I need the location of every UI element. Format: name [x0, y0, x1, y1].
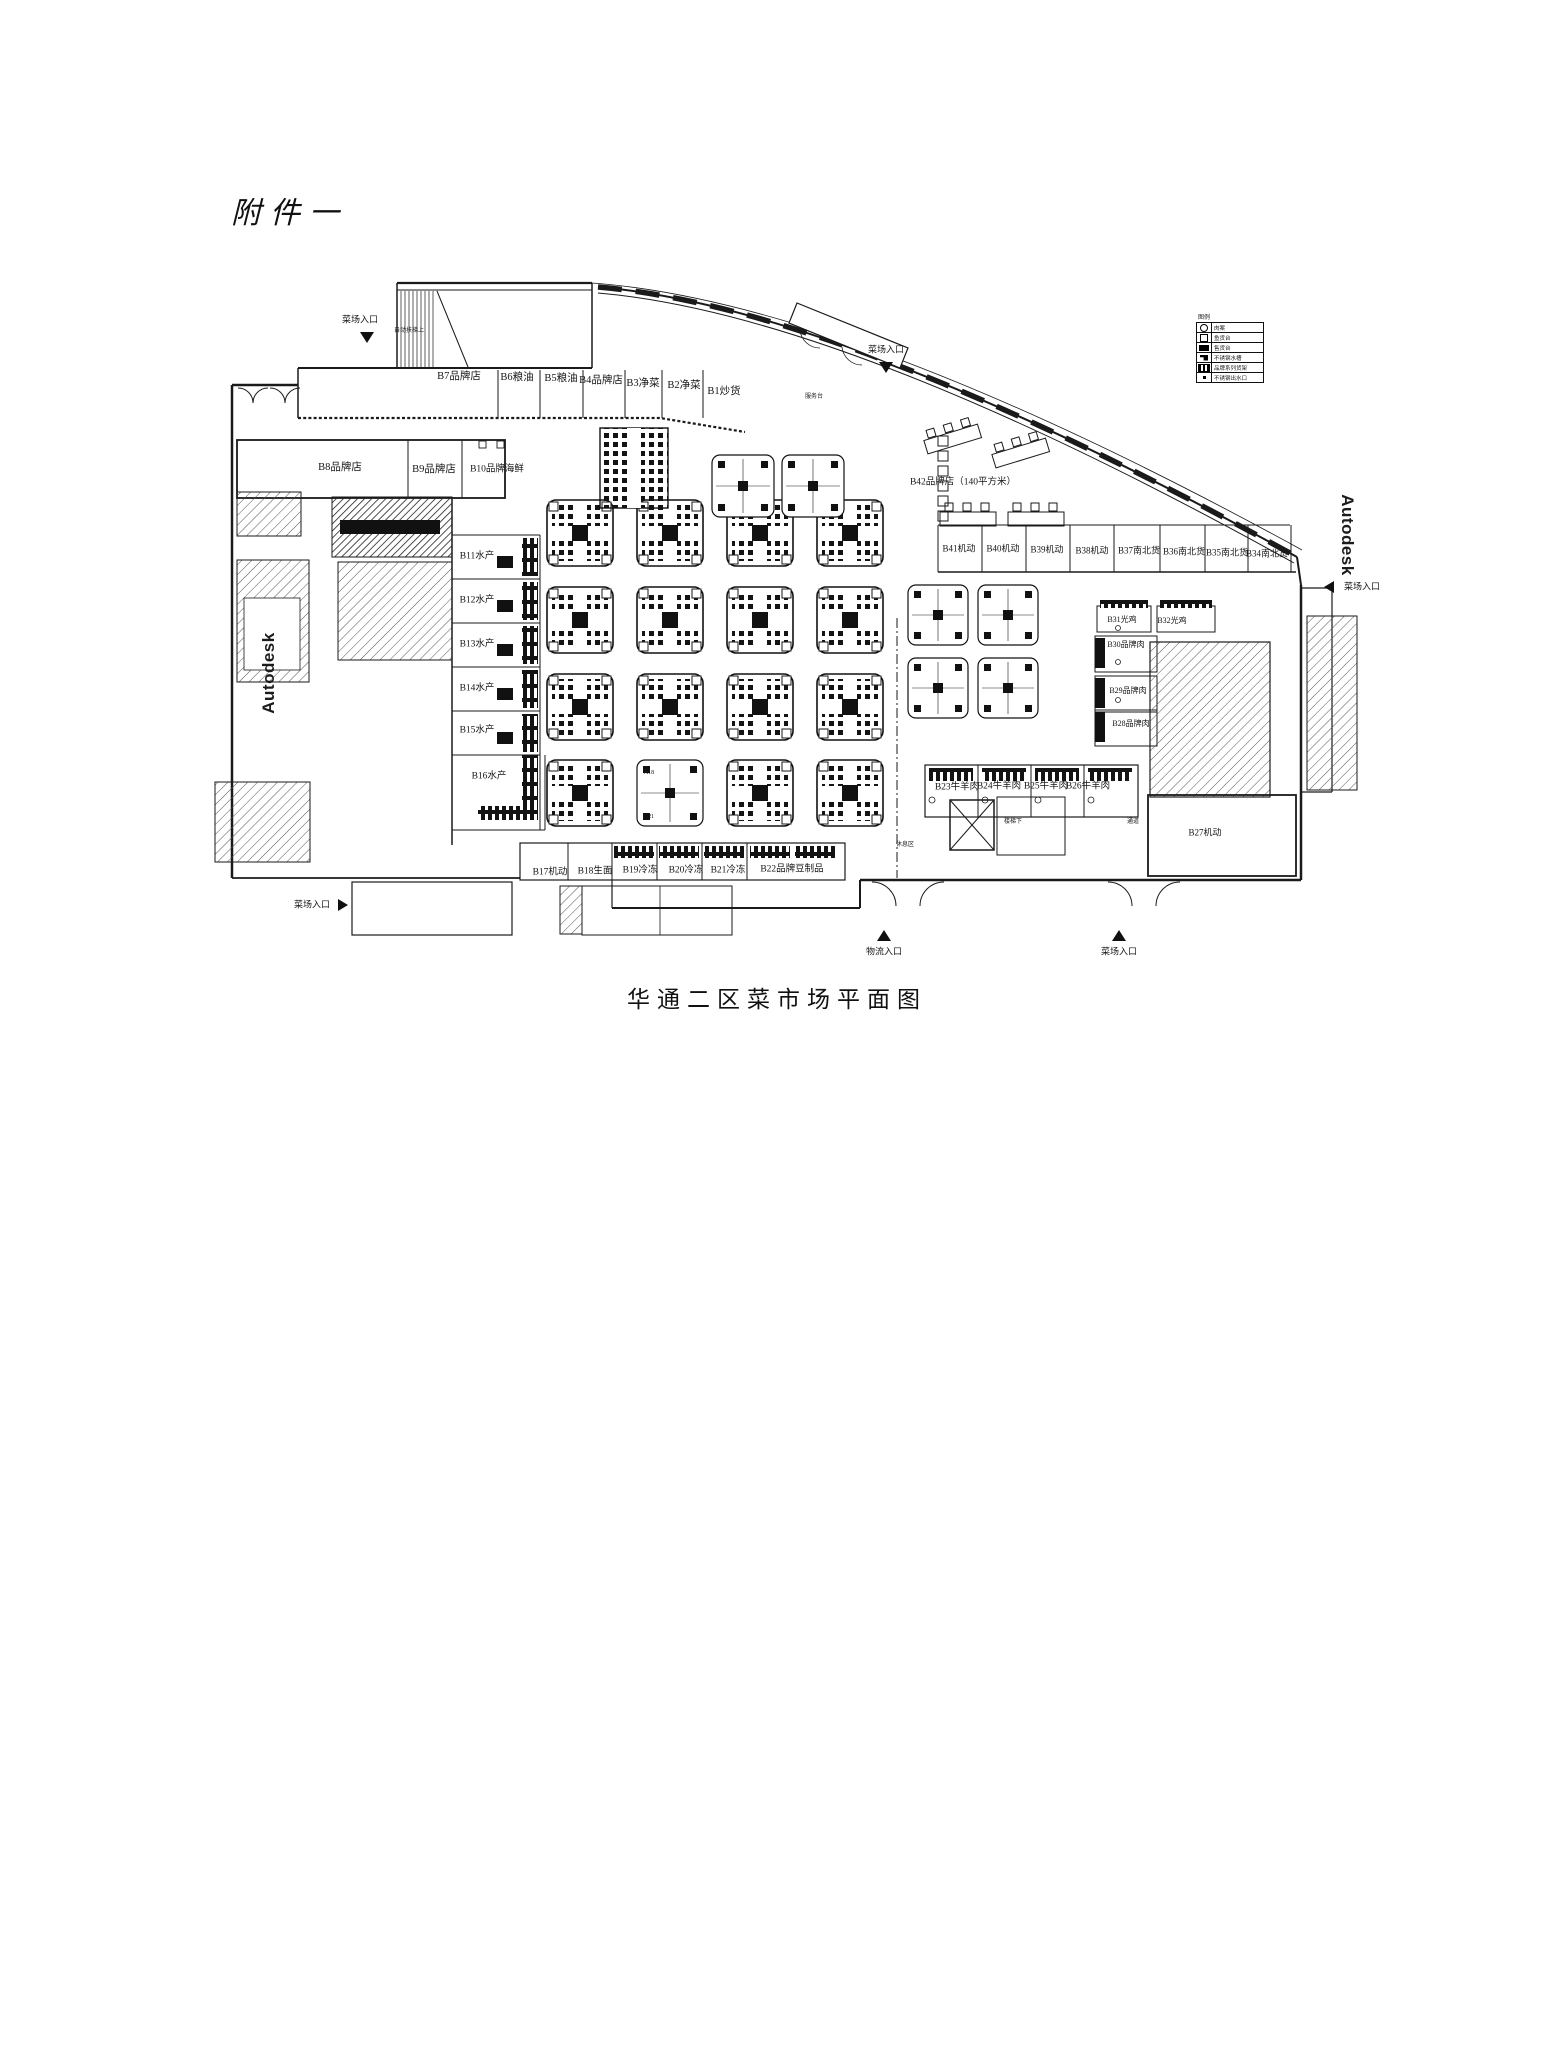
stall-label: B16水产 — [472, 772, 507, 782]
legend-symbol-icon — [1200, 334, 1208, 342]
stall-label: B18生面 — [578, 867, 613, 877]
stall-label: B12水产 — [460, 596, 495, 606]
stall-label: B32光鸡 — [1157, 617, 1186, 625]
stall-label: B13水产 — [460, 640, 495, 650]
watermark-autodesk-left: Autodesk — [259, 632, 279, 713]
stall-label: B30品牌肉 — [1107, 641, 1144, 649]
stall-label: B35南北货 — [1206, 549, 1248, 558]
stall-label: B36南北货 — [1163, 548, 1205, 557]
watermark-autodesk-right: Autodesk — [1337, 494, 1357, 575]
stall-label: B34南北货 — [1246, 550, 1288, 559]
legend-symbol-icon — [1200, 355, 1208, 361]
legend-row-label: 鱼货台 — [1212, 334, 1231, 342]
entrance-label: 菜场入口 — [868, 346, 904, 355]
plan-caption: 华通二区菜市场平面图 — [627, 980, 927, 1014]
stall-label: B8品牌店 — [318, 463, 362, 474]
entrance-label: 菜场入口 — [1344, 583, 1380, 592]
stall-label: B14水产 — [460, 684, 495, 694]
stall-label: B41机动 — [942, 545, 975, 554]
stall-label: B24牛羊肉 — [977, 782, 1021, 792]
stall-label: 楼梯下 — [1004, 819, 1022, 825]
entrance-arrow-icon — [1112, 930, 1126, 941]
legend-row-label: 售货台 — [1212, 344, 1231, 352]
entrance-label: 菜场入口 — [1101, 948, 1137, 957]
stall-label: B15水产 — [460, 726, 495, 736]
stall-label: B10品牌海鲜 — [470, 465, 524, 475]
legend-row: 不锈钢水槽 — [1197, 352, 1263, 362]
stall-label: B23牛羊肉 — [935, 783, 979, 793]
stall-label: B28品牌肉 — [1112, 720, 1149, 728]
legend-symbol-icon — [1200, 324, 1208, 332]
legend-row: 不锈钢出水口 — [1197, 372, 1263, 382]
stall-label: B11水产 — [460, 552, 494, 562]
stall-label: B3净菜 — [626, 379, 659, 390]
entrance-arrow-icon — [877, 930, 891, 941]
legend-table: 肉案鱼货台售货台不锈钢水槽品牌系列货架不锈钢出水口 — [1196, 322, 1264, 383]
stall-label: A18 — [644, 770, 654, 776]
stall-label: B40机动 — [986, 545, 1019, 554]
stall-label: B42品牌店（140平方米） — [910, 478, 1016, 488]
legend-row: 鱼货台 — [1197, 332, 1263, 342]
stall-label: 自动扶梯上 — [394, 328, 424, 334]
legend-row-label: 不锈钢水槽 — [1212, 354, 1242, 362]
entrance-label: 菜场入口 — [342, 316, 378, 325]
stall-label: B39机动 — [1030, 546, 1063, 555]
entrance-label: 菜场入口 — [294, 901, 330, 910]
entrance-arrow-icon — [879, 362, 893, 373]
stall-label: B29品牌肉 — [1109, 687, 1146, 695]
legend-row-label: 肉案 — [1212, 324, 1225, 332]
stall-label: B17机动 — [533, 868, 568, 878]
plan-legend: 图例 肉案鱼货台售货台不锈钢水槽品牌系列货架不锈钢出水口 — [1196, 312, 1264, 383]
stall-label: B26牛羊肉 — [1066, 782, 1110, 792]
stall-label: B38机动 — [1075, 547, 1108, 556]
stall-label: B25牛羊肉 — [1024, 782, 1068, 792]
stall-label: B4品牌店 — [579, 376, 623, 387]
stall-label: B6粮油 — [500, 373, 533, 384]
stall-label: B21冷冻 — [711, 866, 746, 876]
stall-label: B37南北货 — [1118, 547, 1160, 556]
stall-label: B22品牌豆制品 — [760, 865, 823, 875]
floor-plan-drawing — [0, 0, 1547, 2059]
stall-label: 通道 — [1127, 819, 1139, 825]
entrance-arrow-icon — [338, 899, 348, 911]
legend-title: 图例 — [1198, 312, 1264, 321]
legend-row: 肉案 — [1197, 323, 1263, 332]
stall-label: B9品牌店 — [412, 465, 456, 476]
stall-label: B27机动 — [1188, 829, 1221, 838]
legend-symbol-icon — [1198, 364, 1210, 372]
stall-label: 休息区 — [896, 842, 914, 848]
legend-row-label: 品牌系列货架 — [1212, 364, 1247, 372]
stall-label: A21 — [644, 814, 654, 820]
stall-label: B1炒货 — [707, 387, 740, 398]
stall-label: B2净菜 — [667, 381, 700, 392]
stall-label: B20冷冻 — [669, 866, 704, 876]
entrance-arrow-icon — [360, 332, 374, 343]
legend-symbol-icon — [1199, 345, 1209, 351]
stall-label: B31光鸡 — [1107, 616, 1136, 624]
entrance-arrow-icon — [1324, 581, 1334, 593]
stall-label: B7品牌店 — [437, 372, 481, 383]
stall-label: 服务台 — [805, 394, 823, 400]
stall-label: B5粮油 — [544, 374, 577, 385]
attachment-title: 附件一 — [231, 188, 348, 232]
legend-row: 售货台 — [1197, 342, 1263, 352]
legend-row: 品牌系列货架 — [1197, 362, 1263, 372]
stall-label: B19冷冻 — [623, 866, 658, 876]
legend-symbol-icon — [1203, 376, 1206, 379]
legend-row-label: 不锈钢出水口 — [1212, 374, 1247, 382]
entrance-label: 物流入口 — [866, 948, 902, 957]
